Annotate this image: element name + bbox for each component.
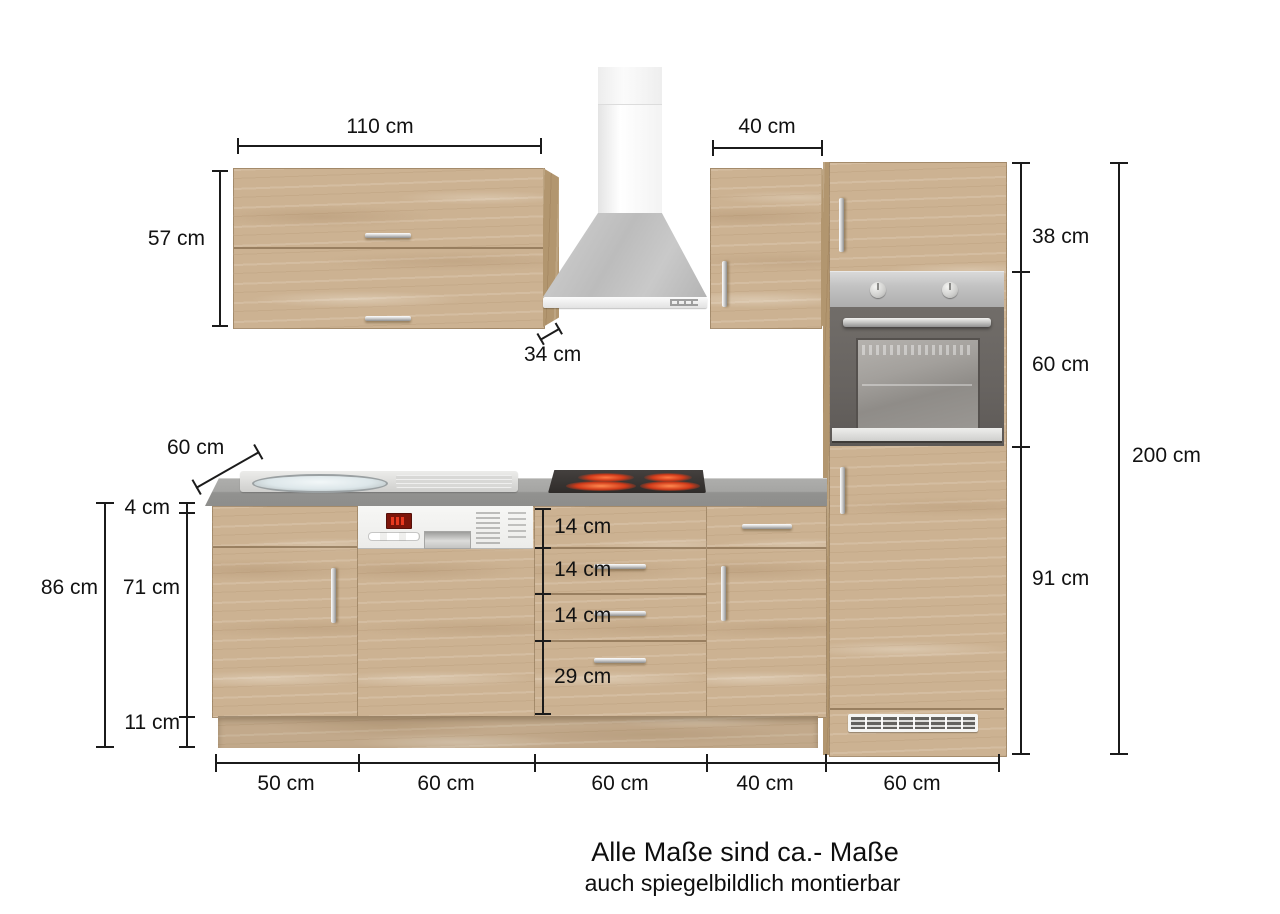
dim-label-width-dishwasher: 60 cm <box>411 773 481 794</box>
dim-line-drawers <box>542 508 544 715</box>
dim-line-57 <box>219 170 221 327</box>
dim-label-upper-right-width: 40 cm <box>732 116 802 137</box>
tall-cabinet-lower-door-handle <box>840 467 845 514</box>
plinth <box>218 716 818 748</box>
kitchen-dimension-diagram: 110 cm 57 cm 34 cm 40 cm <box>0 0 1280 914</box>
dim-label-tall-door: 38 cm <box>1032 226 1089 247</box>
tall-cabinet-bottom-seam <box>830 708 1004 710</box>
dim-label-tall-lower: 91 cm <box>1032 568 1089 589</box>
dim-label-width-sink: 50 cm <box>251 773 321 794</box>
tall-cabinet-top-door-handle <box>839 198 844 252</box>
oven-door-handle <box>843 318 991 327</box>
dim-label-width-drawers: 60 cm <box>585 773 655 794</box>
dishwasher-program-list-left <box>476 512 500 544</box>
footer-note-line2: auch spiegelbildlich montierbar <box>400 870 1085 897</box>
dim-label-counter-thickness: 4 cm <box>105 497 170 518</box>
vent-grille <box>848 714 978 732</box>
dim-line-200 <box>1118 162 1120 755</box>
dim-label-drawer-2: 14 cm <box>554 559 611 580</box>
sink-unit <box>240 471 518 492</box>
base-cabinet-40-door-handle <box>721 566 726 621</box>
wall-cabinet-left <box>233 168 545 329</box>
oven-control-panel <box>830 271 1004 309</box>
dim-line-110 <box>237 145 542 147</box>
dim-label-width-tall: 60 cm <box>877 773 947 794</box>
hood-bottom-rail <box>543 297 707 308</box>
oven-knob-left <box>870 282 886 298</box>
wall-cabinet-right-handle <box>722 261 727 307</box>
dim-label-drawer-3: 14 cm <box>554 605 611 626</box>
dishwasher-program-list-right <box>508 512 526 538</box>
dim-line-right-sections <box>1020 162 1022 755</box>
hood-control-buttons <box>670 299 698 306</box>
dim-label-width-40: 40 cm <box>730 773 800 794</box>
dishwasher-control-panel <box>358 506 533 549</box>
cooktop <box>548 470 706 493</box>
oven-window <box>856 338 980 432</box>
hood-canopy <box>543 213 707 297</box>
dim-label-tall-total: 200 cm <box>1132 445 1201 466</box>
wall-cabinet-left-top-handle <box>365 233 411 238</box>
wall-cabinet-left-door-seam <box>234 247 544 249</box>
base-cabinet-40-drawer-handle <box>742 524 792 529</box>
dim-line-86 <box>104 502 106 748</box>
dim-label-plinth: 11 cm <box>110 712 180 733</box>
dim-label-wall-depth: 34 cm <box>524 344 581 365</box>
drawer-4-handle <box>594 658 646 663</box>
hood-chimney-top-section <box>598 67 662 105</box>
cooktop-burner-front-right <box>640 481 700 491</box>
dim-label-base-height: 86 cm <box>30 577 98 598</box>
dim-line-base-sections <box>186 502 188 748</box>
dim-label-wall-width: 110 cm <box>340 116 420 137</box>
tall-cabinet <box>829 162 1007 757</box>
dim-line-40 <box>712 147 823 149</box>
dim-line-34 <box>540 328 561 341</box>
dim-label-door-height: 71 cm <box>110 577 180 598</box>
dishwasher-handle-recess <box>424 531 471 549</box>
cooktop-burner-front-left <box>566 481 636 491</box>
dim-line-bottom <box>215 762 1000 764</box>
dishwasher-display <box>386 513 412 529</box>
oven-bottom-trim <box>832 428 1002 443</box>
dim-label-drawer-4: 29 cm <box>554 666 611 687</box>
sink-basin <box>252 474 388 493</box>
oven-knob-right <box>942 282 958 298</box>
base-cabinet-sink <box>212 506 359 718</box>
dim-label-oven: 60 cm <box>1032 354 1089 375</box>
footer-note-line1: Alle Maße sind ca.- Maße <box>400 837 1090 868</box>
oven-door <box>830 307 1004 446</box>
dim-label-drawer-1: 14 cm <box>554 516 611 537</box>
dishwasher-buttons <box>368 532 420 541</box>
base-cabinet-sink-handle <box>331 568 336 623</box>
dim-label-counter-depth: 60 cm <box>167 437 224 458</box>
sink-drainboard <box>396 475 512 488</box>
hood-chimney <box>598 67 662 213</box>
dim-label-wall-height: 57 cm <box>135 228 205 249</box>
wall-cabinet-left-bottom-handle <box>365 316 411 321</box>
